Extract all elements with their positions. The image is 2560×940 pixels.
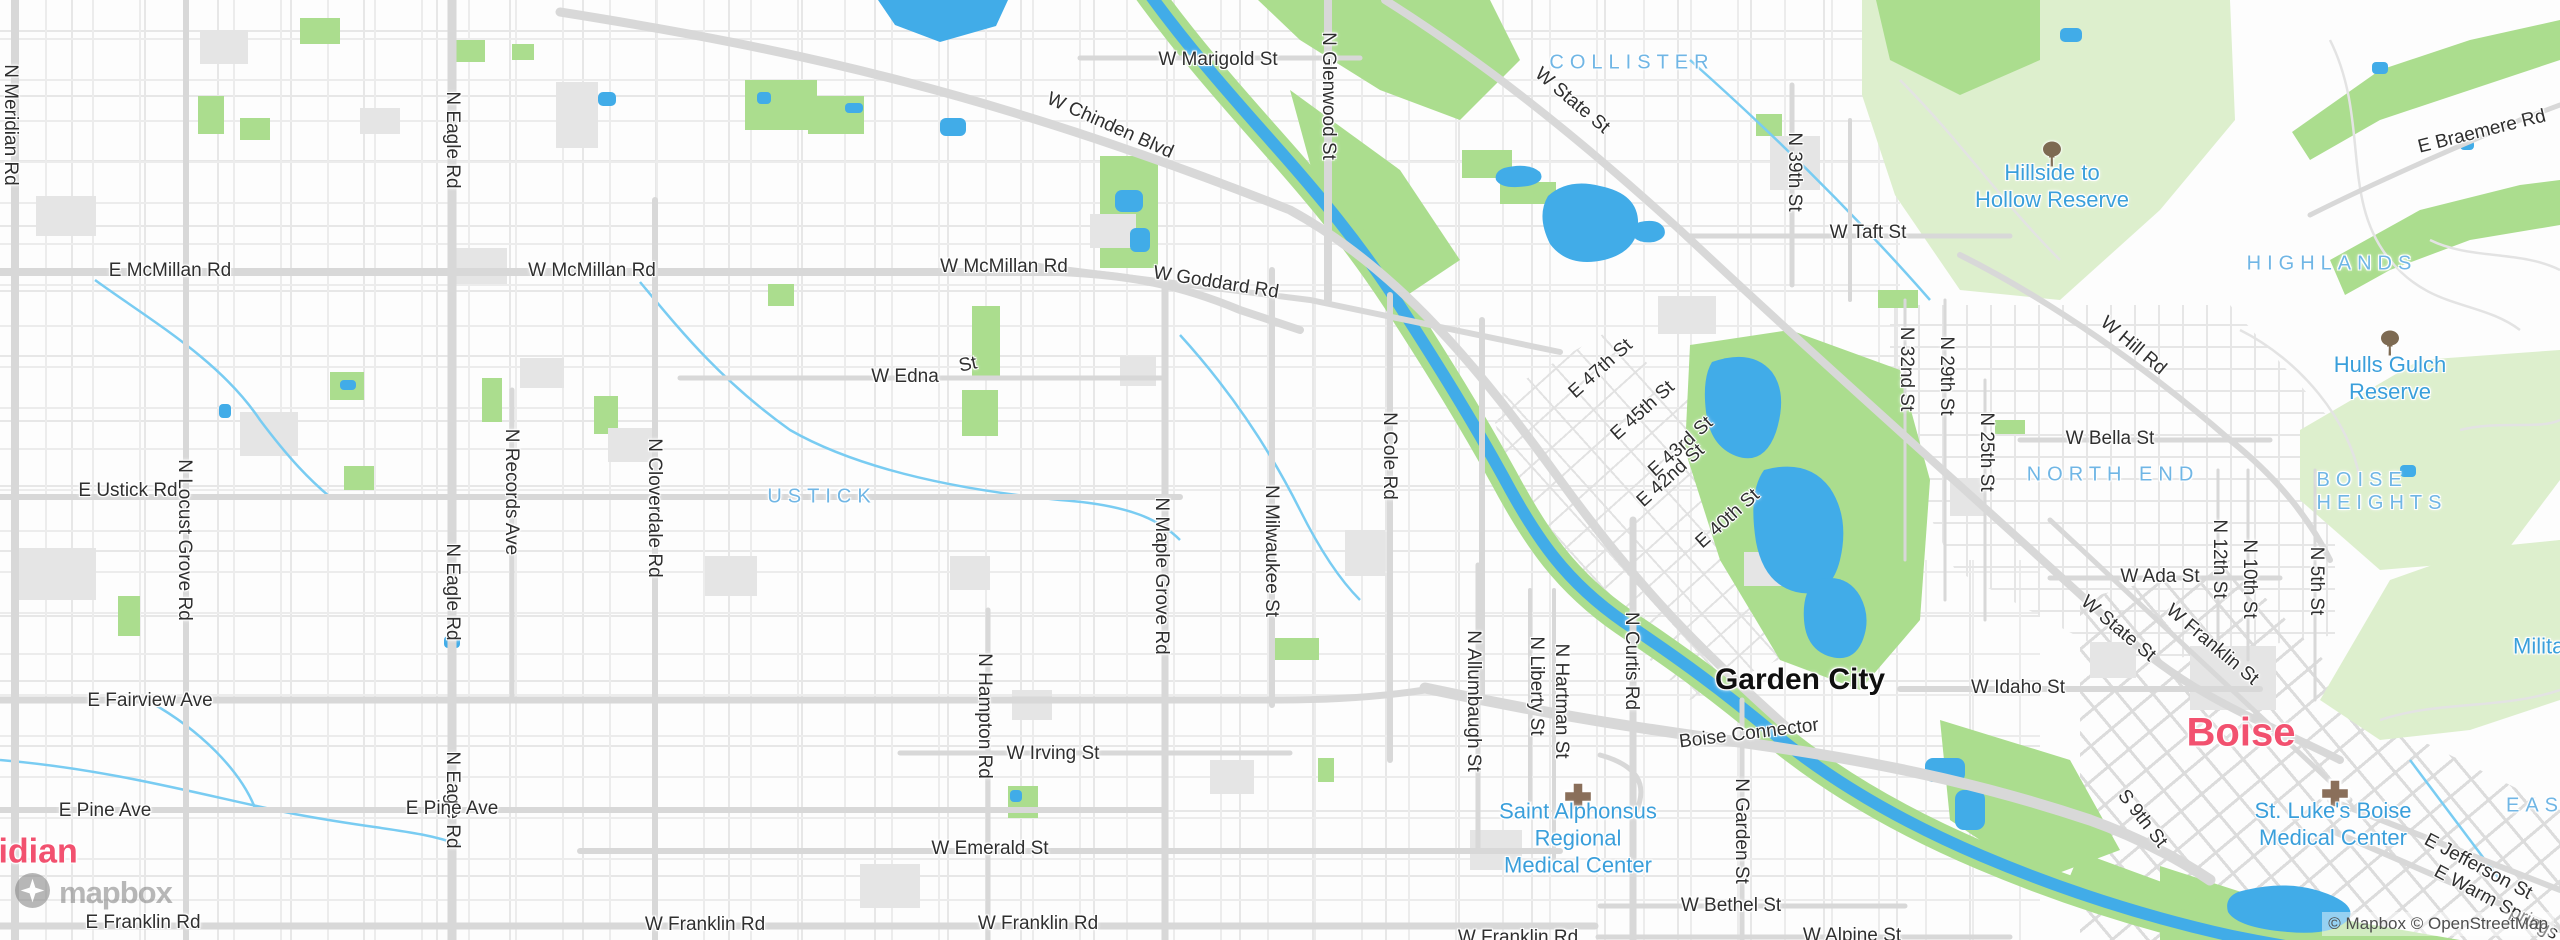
street-label: W Franklin Rd [645, 914, 765, 936]
poi-label: St. Luke's BoiseMedical Center [2254, 797, 2411, 851]
neighborhood-label: BOISEHEIGHTS [2317, 469, 2448, 515]
city-label: Meridian [0, 833, 78, 872]
street-label: N Hampton Rd [973, 653, 995, 779]
street-label: W Alpine St [1803, 925, 1901, 940]
city-label: Boise [2187, 711, 2296, 756]
street-label: N Eagle Rd [441, 543, 463, 640]
mapbox-logo-icon [14, 872, 51, 914]
street-label: N 39th St [1783, 132, 1805, 211]
street-label: N Curtis Rd [1620, 612, 1642, 710]
street-label: W McMillan Rd [940, 256, 1068, 278]
mapbox-logo[interactable]: mapbox [14, 872, 172, 914]
street-label: E Ustick Rd [78, 480, 177, 502]
street-label: N Meridian Rd [0, 64, 21, 185]
street-label: E Fairview Ave [87, 690, 212, 712]
street-label: W Franklin Rd [978, 913, 1098, 935]
street-label: W Bella St [2066, 428, 2155, 450]
city-label: Garden City [1715, 663, 1885, 697]
street-label: E Pine Ave [59, 800, 152, 822]
street-label: N Maple Grove Rd [1150, 497, 1172, 654]
street-label: N Cloverdale Rd [643, 438, 665, 577]
street-label: E Franklin Rd [85, 912, 200, 934]
street-label: N Hartman St [1550, 643, 1572, 758]
street-label: N Glenwood St [1317, 32, 1339, 160]
poi-label: Saint AlphonsusRegionalMedical Center [1499, 798, 1657, 879]
neighborhood-label: EAST END [2506, 795, 2560, 818]
street-label: W Idaho St [1971, 677, 2065, 699]
street-label: W McMillan Rd [528, 260, 656, 282]
street-label: W Franklin Rd [1458, 927, 1578, 940]
street-label: W Irving St [1007, 743, 1100, 765]
poi-label: Hillside toHollow Reserve [1975, 159, 2129, 213]
map-attribution[interactable]: © Mapbox © OpenStreetMap [2322, 912, 2554, 936]
neighborhood-label: NORTH END [2027, 464, 2200, 487]
street-label: N 5th St [2305, 547, 2327, 616]
street-label: N Records Ave [500, 429, 522, 555]
map-canvas[interactable]: N Meridian RdE McMillan RdW McMillan RdW… [0, 0, 2560, 940]
neighborhood-label: COLLISTER [1549, 52, 1714, 75]
neighborhood-label: USTICK [767, 486, 876, 509]
street-label: E Pine Ave [406, 798, 499, 820]
street-label: N 25th St [1975, 412, 1997, 491]
street-label: N Eagle Rd [441, 91, 463, 188]
street-label: N 32nd St [1895, 327, 1917, 412]
mapbox-wordmark: mapbox [59, 875, 172, 911]
street-label: N Locust Grove Rd [173, 459, 195, 621]
street-label: N 29th St [1935, 336, 1957, 415]
neighborhood-label: HIGHLANDS [2247, 253, 2418, 276]
street-label: N Cole Rd [1378, 412, 1400, 500]
street-label: N Liberty St [1525, 636, 1547, 735]
street-label: W Edna [871, 366, 939, 388]
street-label: N 10th St [2238, 539, 2260, 618]
street-label: W Marigold St [1158, 49, 1277, 71]
street-label: N Garden St [1730, 778, 1752, 884]
poi-label: Military Reserve [2513, 633, 2560, 660]
street-label: N 12th St [2208, 519, 2230, 598]
street-label: N Allumbaugh St [1462, 630, 1484, 772]
street-label: N Milwaukee St [1260, 485, 1282, 617]
street-label: W Ada St [2120, 566, 2199, 588]
street-label: W Taft St [1830, 222, 1907, 244]
street-label: W Emerald St [931, 838, 1048, 860]
street-label: E McMillan Rd [109, 260, 231, 282]
street-label: W Bethel St [1681, 895, 1781, 917]
poi-label: Hulls GulchReserve [2334, 351, 2446, 405]
